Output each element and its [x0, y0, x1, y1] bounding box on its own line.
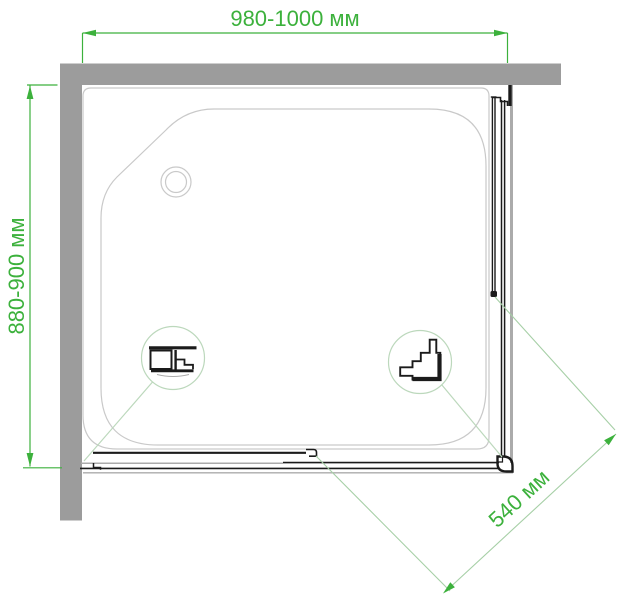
depth-arrow-top	[27, 86, 34, 100]
width-dimension-label: 980-1000 мм	[230, 6, 359, 31]
corner-roller-profile-icon	[400, 340, 440, 380]
entry-dimension-label: 540 мм	[484, 465, 555, 533]
door-rail-profile-icon	[149, 348, 197, 377]
right-detail-leader-line	[442, 385, 503, 458]
diagram-canvas: 980-1000 мм 880-900 мм 540 мм	[0, 0, 625, 600]
bottom-door-assembly	[80, 450, 513, 473]
depth-arrow-bottom	[27, 453, 34, 467]
right-panel-assembly	[491, 85, 512, 463]
width-arrow-right	[494, 30, 508, 36]
shower-tray-outline	[83, 88, 489, 449]
entry-dimension-line	[445, 434, 616, 592]
width-dimension: 980-1000 мм	[83, 6, 508, 63]
top-wall	[60, 64, 561, 86]
tray-basin-outline	[101, 109, 486, 445]
corner-profile	[498, 457, 513, 472]
bottom-panel-end-cap	[306, 450, 317, 457]
depth-dimension-label: 880-900 мм	[4, 217, 29, 334]
shower-enclosure-dimension-diagram: 980-1000 мм 880-900 мм 540 мм	[0, 0, 625, 600]
depth-dimension: 880-900 мм	[4, 85, 62, 468]
drain-icon	[161, 167, 191, 197]
width-arrow-left	[83, 30, 97, 36]
entry-ext-lower	[316, 456, 450, 591]
left-wall	[60, 64, 82, 521]
right-panel-end-cap	[491, 291, 498, 297]
